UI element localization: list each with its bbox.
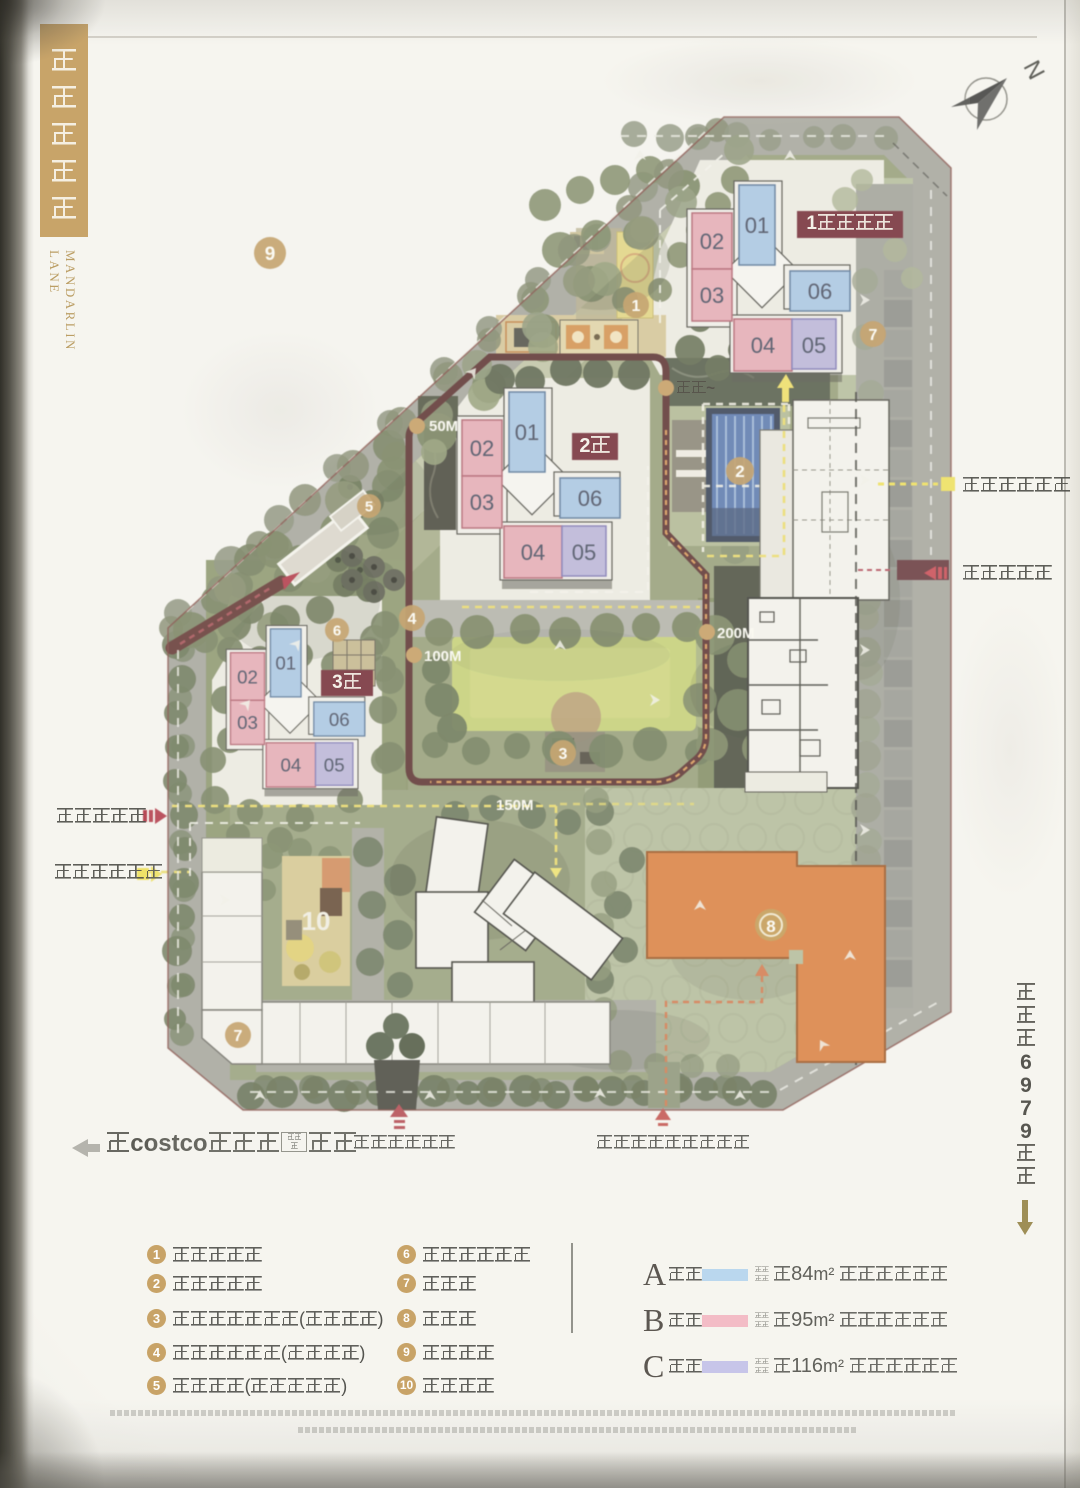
- svg-text:9: 9: [265, 244, 276, 265]
- svg-text:05: 05: [572, 540, 596, 565]
- svg-text:200M: 200M: [717, 625, 755, 642]
- svg-text:50M: 50M: [429, 418, 458, 435]
- svg-text:04: 04: [280, 755, 301, 776]
- svg-text:03: 03: [470, 490, 494, 515]
- svg-text:5: 5: [365, 498, 373, 515]
- svg-text:01: 01: [745, 213, 769, 238]
- svg-text:06: 06: [808, 279, 832, 304]
- svg-text:06: 06: [329, 709, 350, 730]
- svg-text:8: 8: [766, 917, 775, 936]
- svg-text:04: 04: [751, 333, 775, 358]
- svg-text:7: 7: [869, 327, 878, 344]
- svg-text:10: 10: [302, 906, 331, 936]
- svg-text:2: 2: [735, 462, 744, 481]
- svg-text:1: 1: [632, 298, 641, 315]
- svg-text:04: 04: [521, 540, 545, 565]
- svg-text:3: 3: [559, 746, 568, 763]
- svg-text:100M: 100M: [424, 648, 462, 665]
- svg-text:4: 4: [408, 611, 417, 628]
- svg-text:01: 01: [515, 420, 539, 445]
- svg-text:06: 06: [578, 486, 602, 511]
- svg-text:01: 01: [275, 653, 296, 674]
- svg-text:6: 6: [333, 622, 341, 639]
- svg-text:03: 03: [237, 712, 258, 733]
- svg-text:N: N: [1018, 56, 1050, 84]
- svg-text:03: 03: [700, 283, 724, 308]
- svg-text:05: 05: [324, 755, 345, 776]
- svg-text:02: 02: [470, 436, 494, 461]
- svg-text:05: 05: [802, 333, 826, 358]
- svg-text:02: 02: [237, 666, 258, 687]
- svg-text:7: 7: [234, 1028, 243, 1045]
- svg-text:150M: 150M: [496, 797, 534, 814]
- svg-text:02: 02: [700, 229, 724, 254]
